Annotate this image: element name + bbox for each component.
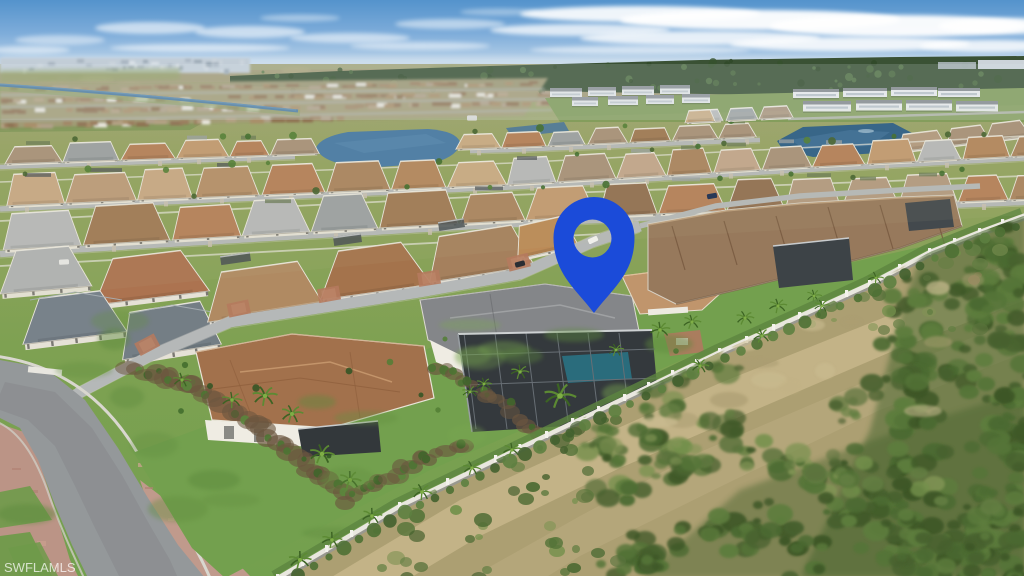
- svg-text:SWFLAMLS: SWFLAMLS: [4, 560, 76, 575]
